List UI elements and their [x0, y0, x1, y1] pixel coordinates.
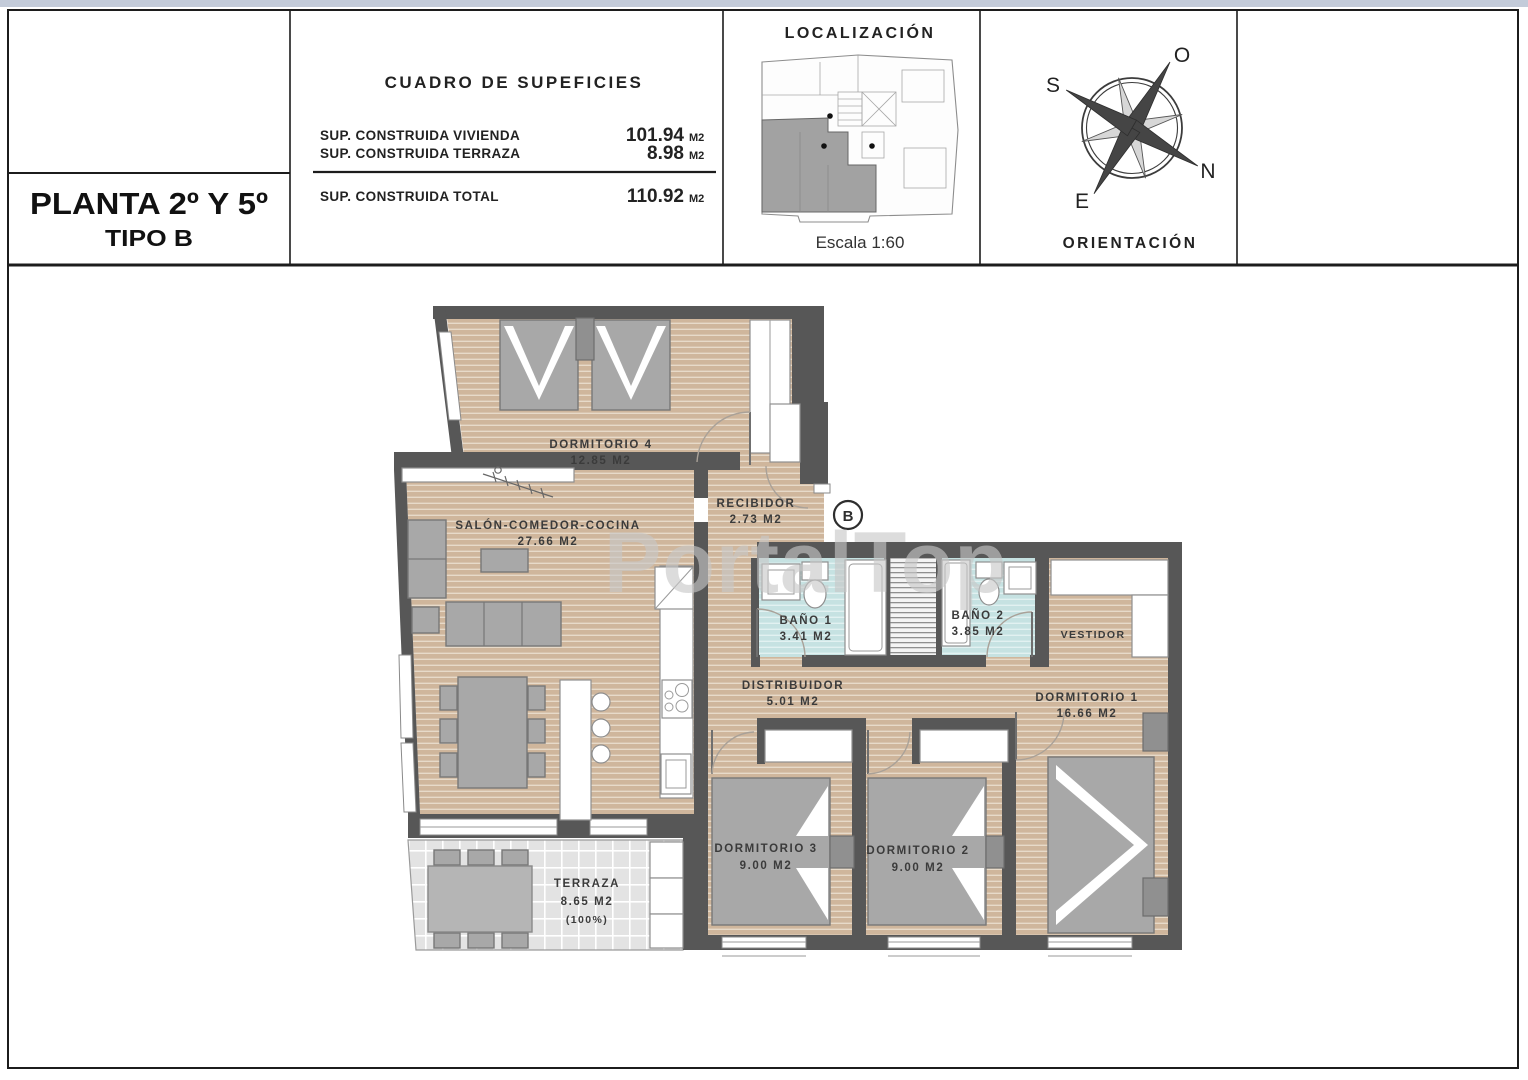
room-note-terraza: (100%)	[566, 914, 608, 926]
localization-title: LOCALIZACIÓN	[785, 23, 936, 42]
surface-total-label: SUP. CONSTRUIDA TOTAL	[320, 189, 499, 204]
room-area-salon: 27.66 M2	[518, 536, 579, 548]
room-area-dormitorio3: 9.00 M2	[740, 860, 793, 872]
room-label-recibidor: RECIBIDOR	[717, 498, 796, 510]
room-area-dormitorio1: 16.66 M2	[1057, 708, 1118, 720]
salon-top-cabinet	[402, 468, 574, 482]
compass-north-label: N	[1200, 160, 1215, 183]
room-area-bano1: 3.41 M2	[780, 631, 833, 643]
orientation-block: S O N E ORIENTACIÓN	[1046, 44, 1216, 252]
plan-title: PLANTA 2º Y 5º	[30, 186, 268, 221]
vestidor-closet-top	[1051, 560, 1168, 595]
wardrobe-dormitorio3	[765, 730, 852, 762]
dining-table	[458, 677, 527, 788]
compass-east-label: E	[1075, 190, 1089, 213]
compass-west-label: O	[1174, 44, 1190, 67]
room-label-vestidor: VESTIDOR	[1061, 629, 1126, 641]
wardrobe-dormitorio2	[920, 730, 1008, 762]
surface-table: CUADRO DE SUPEFICIES SUP. CONSTRUIDA VIV…	[313, 73, 716, 207]
kitchen-island	[560, 680, 591, 820]
room-label-dormitorio3: DORMITORIO 3	[714, 843, 817, 855]
surface-row-value: 8.98	[647, 143, 684, 164]
coffee-table	[481, 549, 528, 572]
surface-row-label: SUP. CONSTRUIDA TERRAZA	[320, 146, 520, 161]
compass-rose-icon	[1066, 62, 1198, 194]
floorplan-drawing: PLANTA 2º Y 5º TIPO B CUADRO DE SUPEFICI…	[0, 0, 1528, 1080]
room-label-distribuidor: DISTRIBUIDOR	[742, 680, 844, 692]
entry-door-leaf	[770, 404, 800, 462]
surface-row-unit: M2	[689, 132, 704, 144]
scale-label: Escala 1:60	[816, 233, 905, 252]
room-label-bano1: BAÑO 1	[779, 614, 832, 627]
title-block: PLANTA 2º Y 5º TIPO B	[8, 173, 290, 251]
surface-row-label: SUP. CONSTRUIDA VIVIENDA	[320, 128, 520, 143]
window-salon-left-2	[401, 743, 416, 812]
room-area-bano2: 3.85 M2	[952, 626, 1005, 638]
localization-block: LOCALIZACIÓN Escala 1:60	[762, 23, 958, 252]
room-label-dormitorio1: DORMITORIO 1	[1035, 692, 1138, 704]
top-bar	[0, 0, 1528, 7]
room-label-terraza: TERRAZA	[554, 878, 620, 890]
watermark: PortalTop	[604, 515, 1008, 611]
room-area-distribuidor: 5.01 M2	[767, 696, 820, 708]
terraza-dining-set	[428, 850, 532, 948]
key-plan-icon	[762, 55, 958, 222]
compass-south-label: S	[1046, 74, 1060, 97]
vestidor-closet-right	[1132, 595, 1168, 657]
terraza-storage-2	[650, 878, 683, 914]
orientation-title: ORIENTACIÓN	[1063, 234, 1198, 252]
surface-total-unit: M2	[689, 193, 704, 205]
room-area-dormitorio4: 12.85 M2	[571, 455, 632, 467]
room-label-dormitorio4: DORMITORIO 4	[549, 439, 652, 451]
terraza-storage-1	[650, 842, 683, 878]
terraza-storage-3	[650, 914, 683, 948]
room-area-terraza: 8.65 M2	[561, 896, 614, 908]
surface-total-value: 110.92	[627, 186, 684, 207]
surface-table-title: CUADRO DE SUPEFICIES	[385, 73, 644, 92]
surface-row-unit: M2	[689, 150, 704, 162]
terraza-table	[428, 866, 532, 932]
room-area-dormitorio2: 9.00 M2	[892, 862, 945, 874]
room-label-dormitorio2: DORMITORIO 2	[866, 845, 969, 857]
dining-set	[440, 677, 545, 788]
window-salon-left-1	[399, 655, 413, 738]
floorplan-sheet: PLANTA 2º Y 5º TIPO B CUADRO DE SUPEFICI…	[0, 0, 1528, 1080]
plan-subtitle: TIPO B	[105, 225, 193, 251]
